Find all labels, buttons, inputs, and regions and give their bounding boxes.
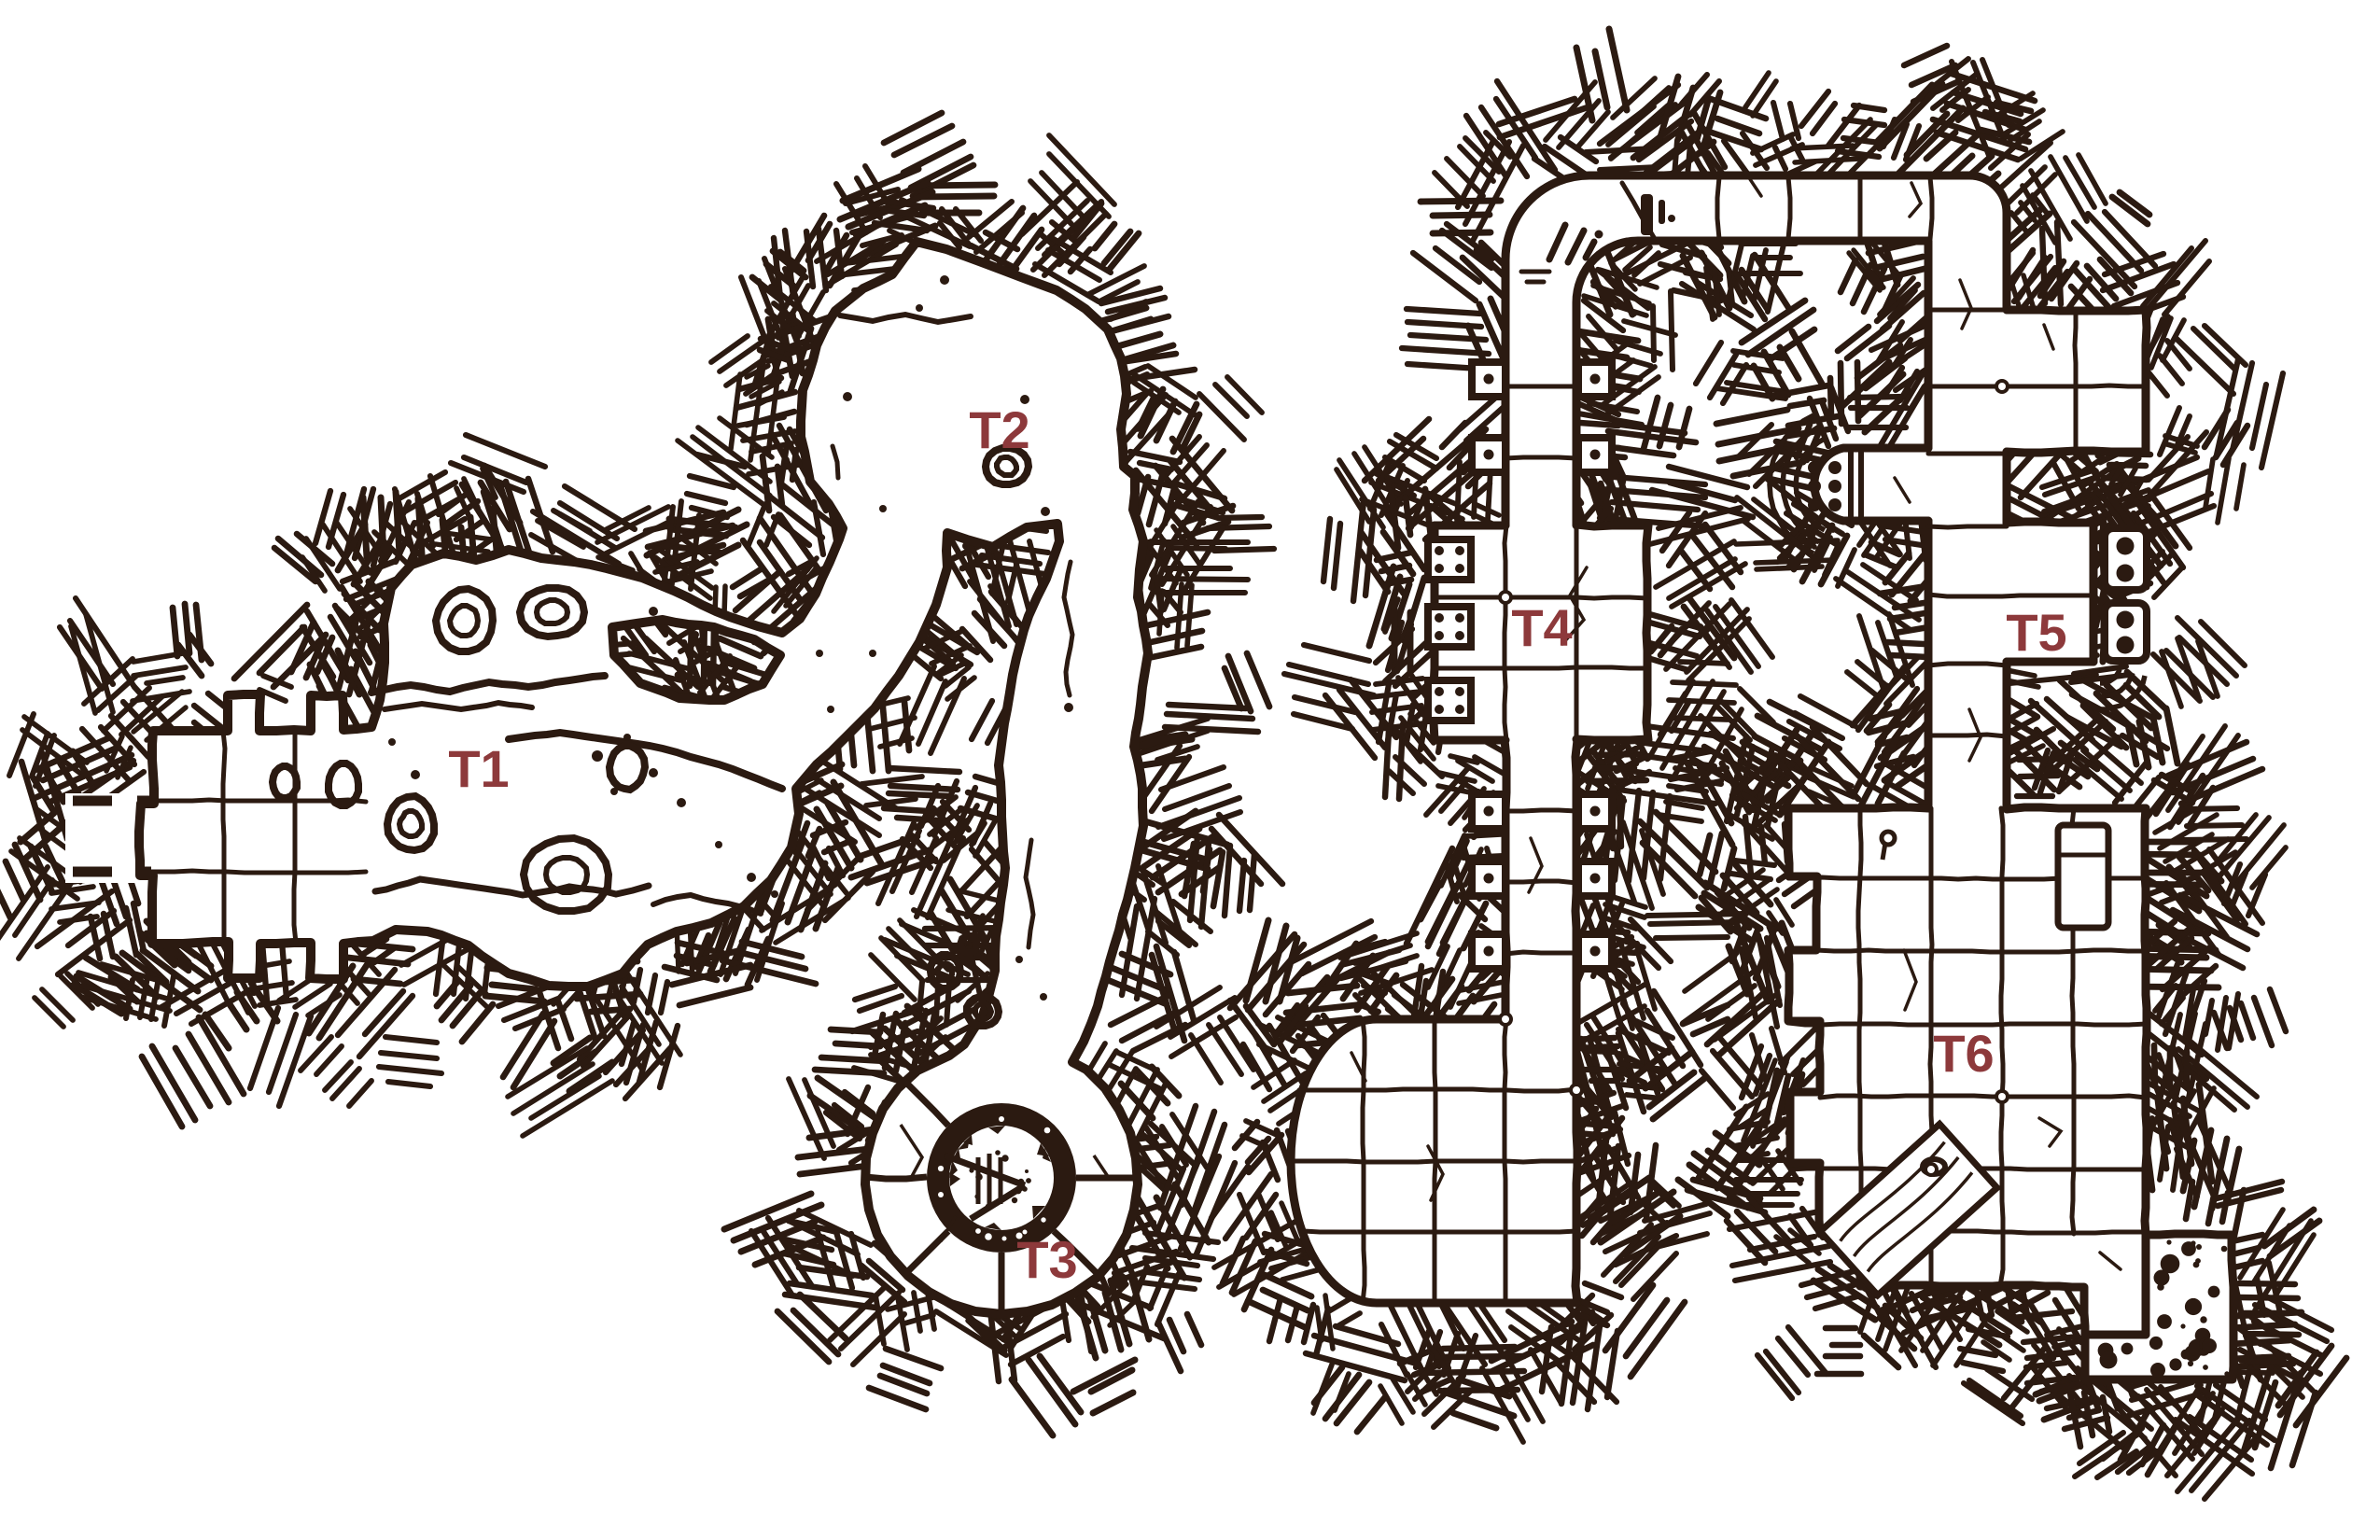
svg-text:T5: T5 <box>2006 603 2066 662</box>
svg-text:T6: T6 <box>1933 1024 1994 1083</box>
svg-text:T1: T1 <box>448 739 509 798</box>
svg-text:T4: T4 <box>1511 598 1572 657</box>
svg-text:T2: T2 <box>969 400 1029 459</box>
svg-text:T3: T3 <box>1016 1230 1077 1289</box>
